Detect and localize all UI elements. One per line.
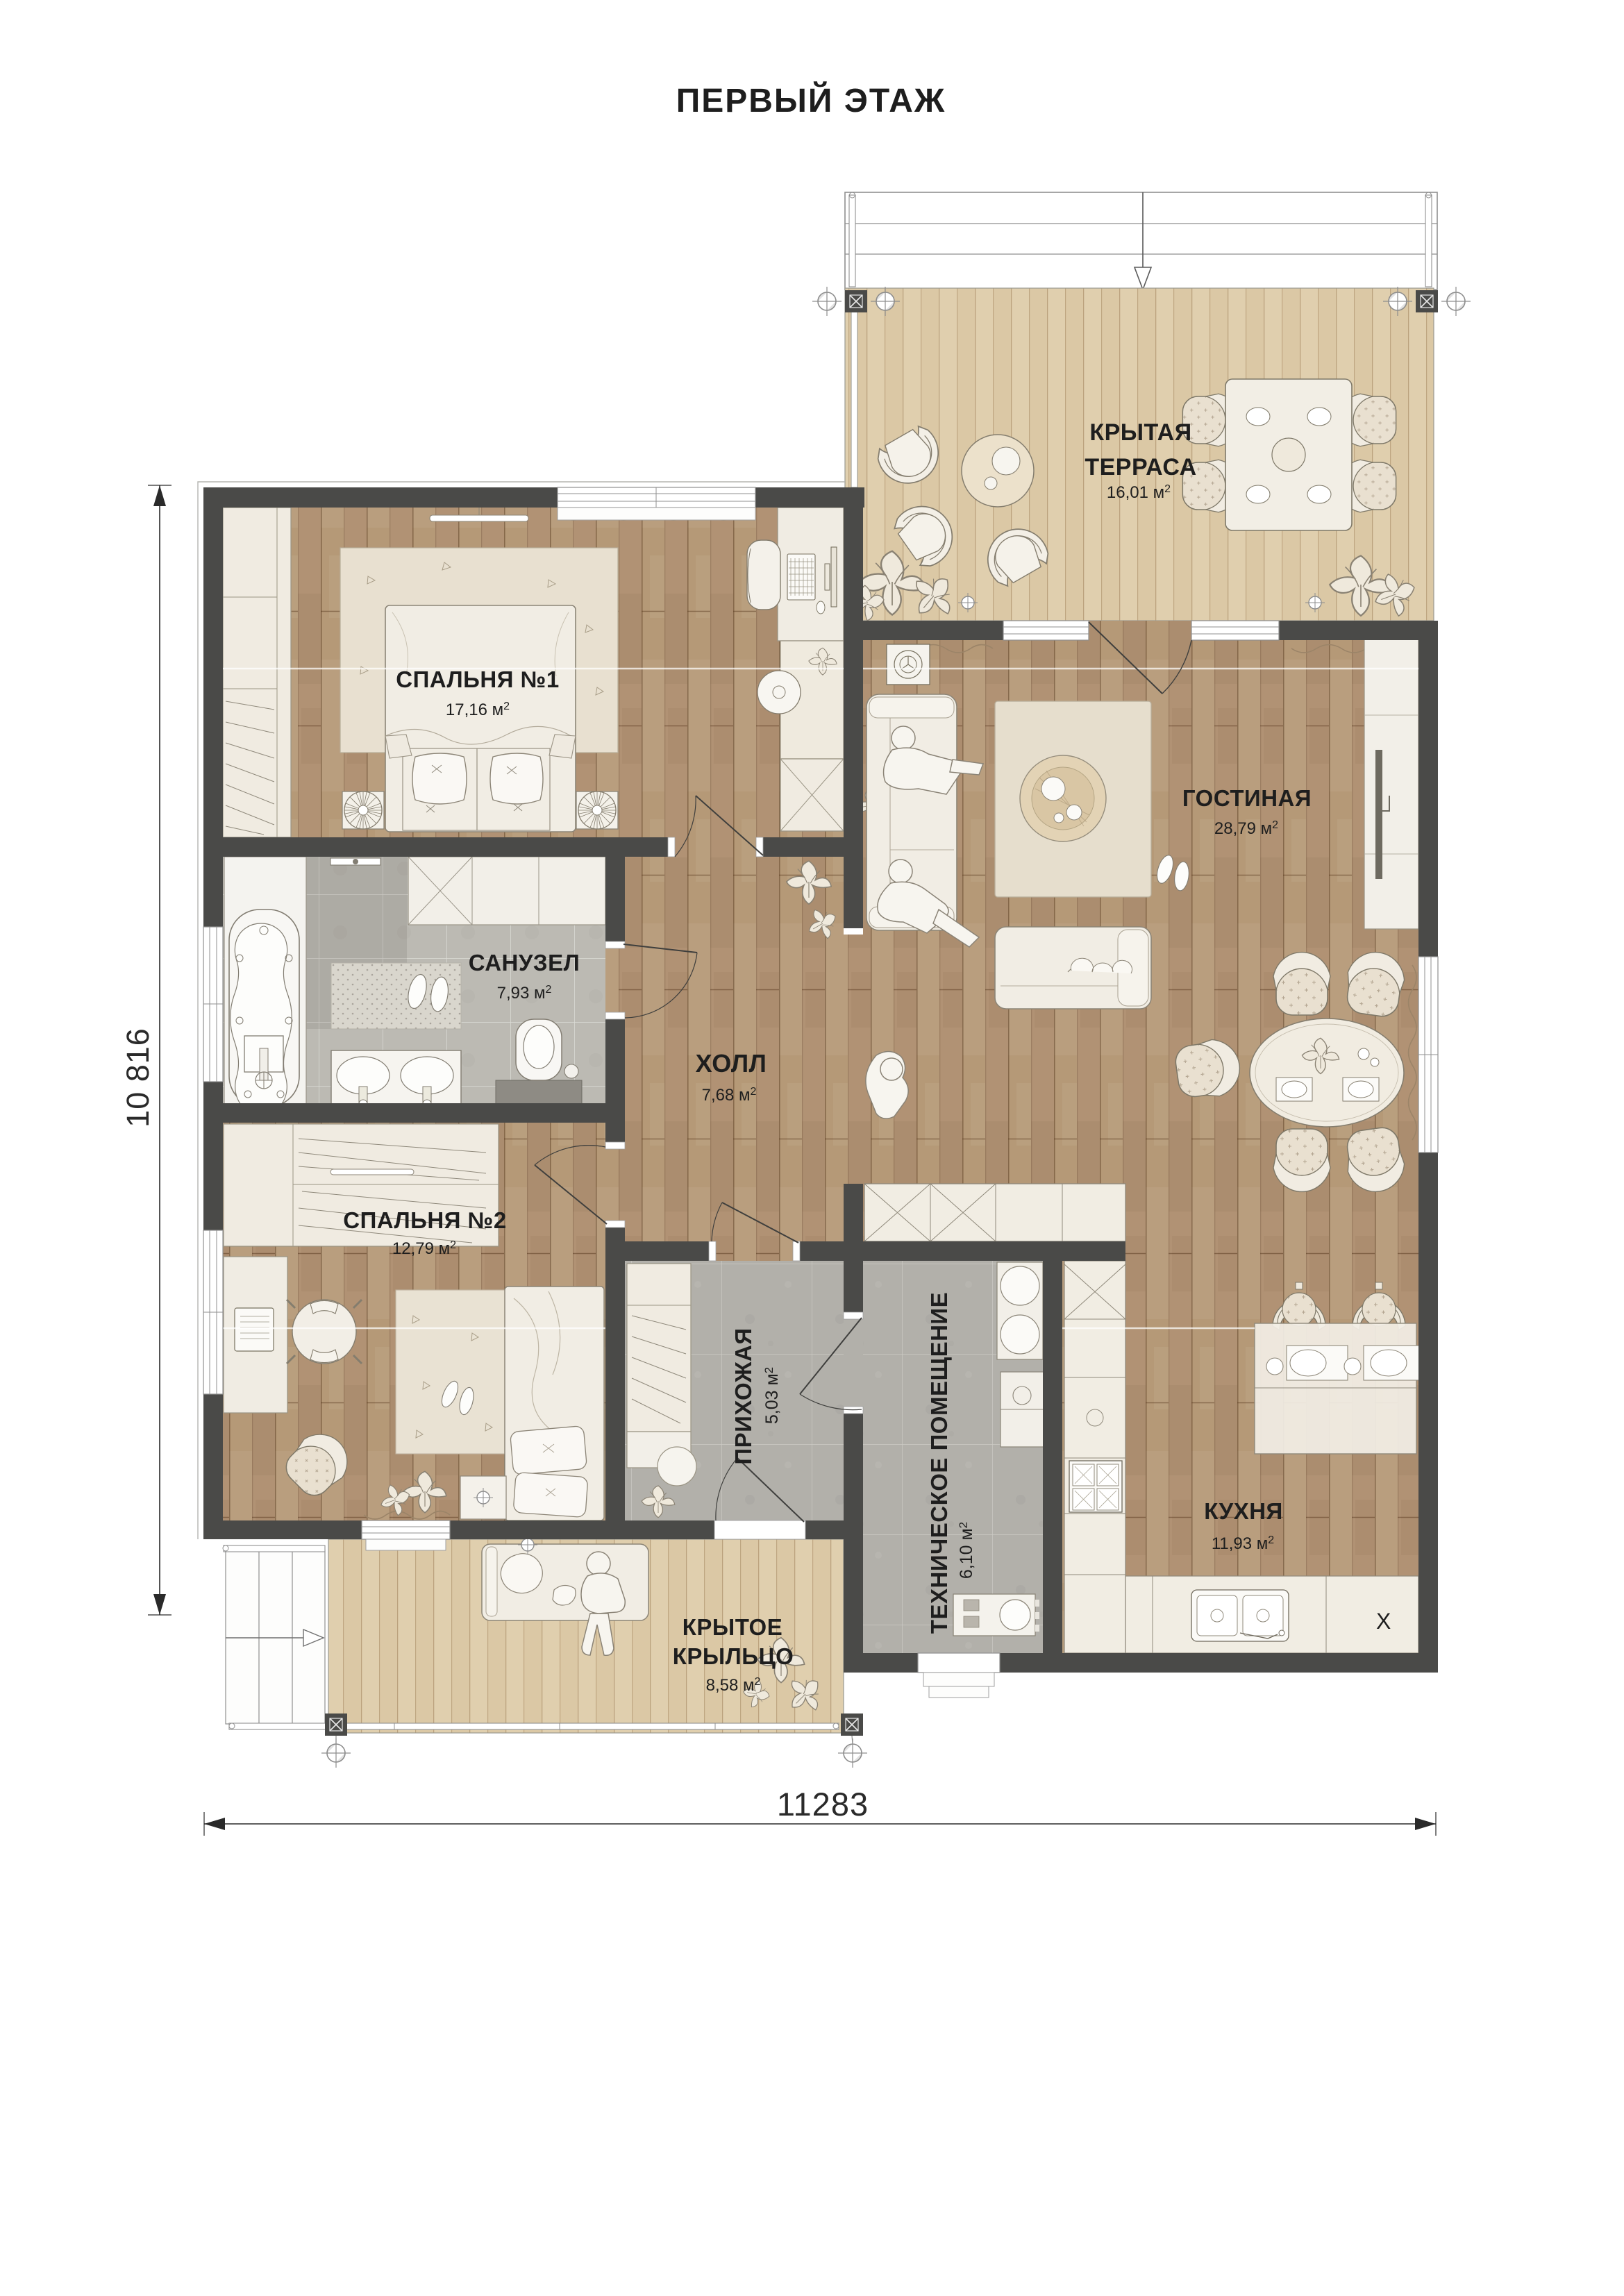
svg-text:СПАЛЬНЯ №2: СПАЛЬНЯ №2 xyxy=(343,1207,507,1233)
svg-text:САНУЗЕЛ: САНУЗЕЛ xyxy=(469,950,580,975)
svg-text:11283: 11283 xyxy=(777,1786,869,1822)
svg-text:КРЫТАЯ: КРЫТАЯ xyxy=(1089,419,1191,446)
svg-text:6,10 м2: 6,10 м2 xyxy=(957,1522,976,1579)
svg-text:ПЕРВЫЙ ЭТАЖ: ПЕРВЫЙ ЭТАЖ xyxy=(676,81,946,119)
svg-text:16,01 м2: 16,01 м2 xyxy=(1107,483,1171,502)
svg-text:ТЕРРАСА: ТЕРРАСА xyxy=(1085,454,1196,480)
svg-text:ГОСТИНАЯ: ГОСТИНАЯ xyxy=(1182,785,1312,811)
svg-text:КРЫТОЕ: КРЫТОЕ xyxy=(683,1614,782,1640)
svg-text:ПРИХОЖАЯ: ПРИХОЖАЯ xyxy=(730,1327,756,1464)
svg-text:ХОЛЛ: ХОЛЛ xyxy=(696,1049,767,1078)
svg-text:5,03 м2: 5,03 м2 xyxy=(762,1367,782,1424)
svg-text:7,68 м2: 7,68 м2 xyxy=(702,1086,757,1105)
svg-text:11,93 м2: 11,93 м2 xyxy=(1212,1534,1274,1553)
svg-text:17,16 м2: 17,16 м2 xyxy=(446,701,510,719)
svg-text:8,58 м2: 8,58 м2 xyxy=(706,1676,761,1695)
svg-text:28,79 м2: 28,79 м2 xyxy=(1214,819,1278,838)
svg-text:КУХНЯ: КУХНЯ xyxy=(1204,1498,1283,1524)
svg-text:ТЕХНИЧЕСКОЕ ПОМЕЩЕНИЕ: ТЕХНИЧЕСКОЕ ПОМЕЩЕНИЕ xyxy=(926,1292,952,1634)
svg-text:10 816: 10 816 xyxy=(120,1028,156,1128)
svg-text:7,93 м2: 7,93 м2 xyxy=(497,984,552,1003)
svg-text:X: X xyxy=(1376,1609,1391,1634)
svg-text:КРЫЛЬЦО: КРЫЛЬЦО xyxy=(673,1643,794,1669)
svg-text:СПАЛЬНЯ №1: СПАЛЬНЯ №1 xyxy=(396,667,560,692)
svg-text:12,79 м2: 12,79 м2 xyxy=(392,1239,456,1258)
